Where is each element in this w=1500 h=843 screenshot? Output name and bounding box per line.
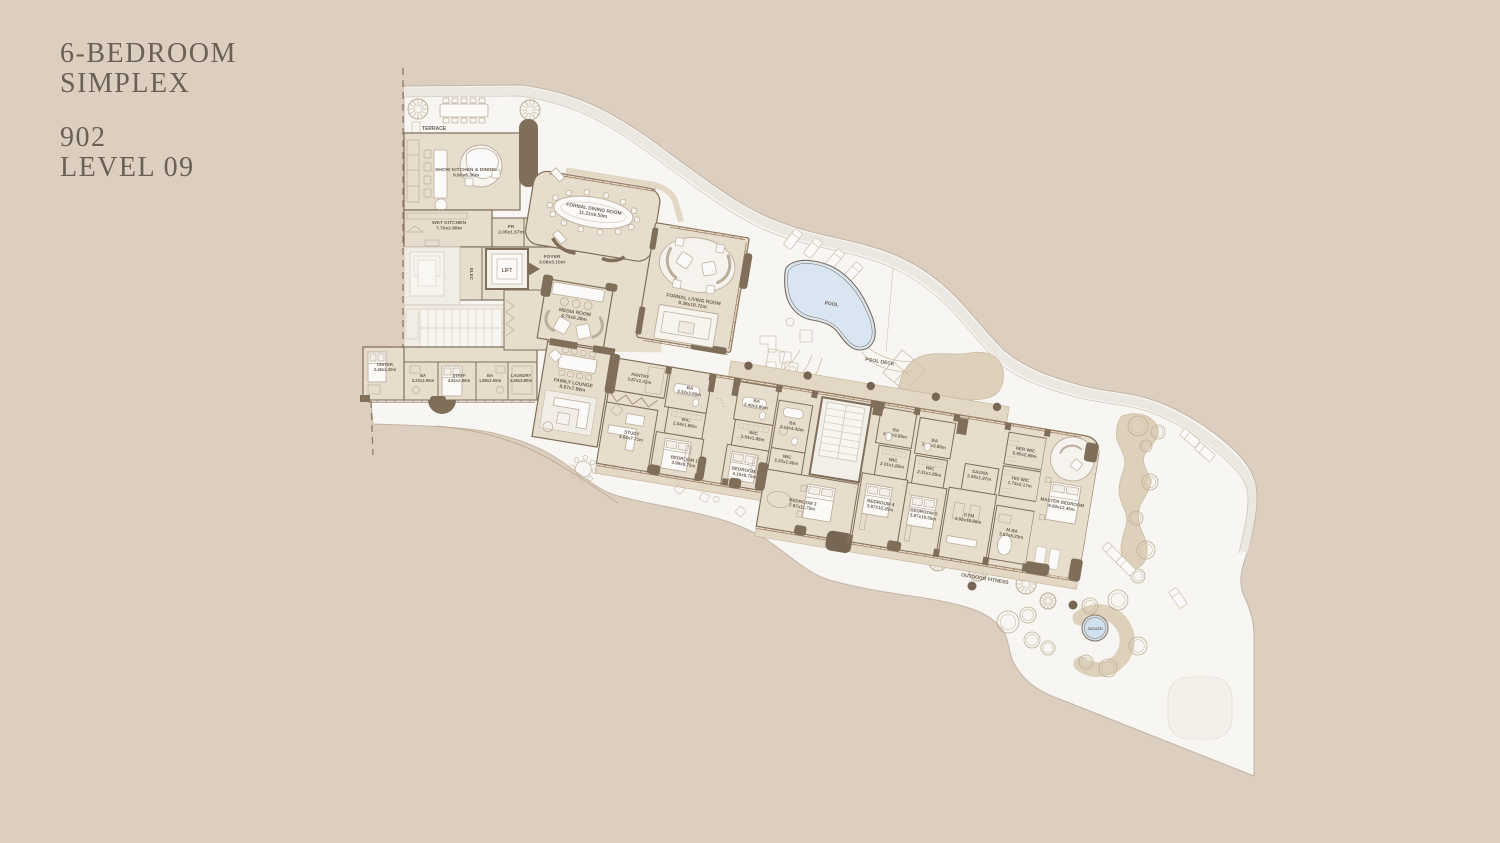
svg-text:2.45x2.90m: 2.45x2.90m: [510, 378, 533, 383]
svg-text:SHOW KITCHEN & DINING: SHOW KITCHEN & DINING: [435, 167, 497, 173]
svg-text:2.46x4.20m: 2.46x4.20m: [374, 367, 397, 372]
svg-text:LIFT: LIFT: [502, 268, 513, 274]
svg-text:SIMPLEX: SIMPLEX: [60, 68, 190, 99]
svg-text:PR: PR: [508, 224, 515, 230]
svg-text:WET KITCHEN: WET KITCHEN: [432, 220, 466, 226]
svg-text:2.20x2.95m: 2.20x2.95m: [412, 378, 435, 383]
svg-text:9.90x8.36m: 9.90x8.36m: [453, 173, 480, 179]
svg-text:FOYER: FOYER: [544, 254, 561, 260]
svg-text:7.70x2.88m: 7.70x2.88m: [436, 226, 463, 232]
svg-text:6-BEDROOM: 6-BEDROOM: [60, 38, 237, 69]
svg-text:3.81x2.96m: 3.81x2.96m: [448, 378, 471, 383]
svg-text:902: 902: [60, 122, 107, 153]
svg-text:TERRACE: TERRACE: [422, 126, 447, 132]
svg-text:LEVEL 09: LEVEL 09: [60, 152, 195, 183]
svg-text:ELEC: ELEC: [469, 268, 474, 281]
svg-text:3.08x3.10m: 3.08x3.10m: [539, 260, 566, 266]
svg-text:JACUZZI: JACUZZI: [1087, 627, 1102, 631]
svg-text:2.05x1.57m: 2.05x1.57m: [498, 230, 524, 236]
svg-text:1.88x2.95m: 1.88x2.95m: [479, 378, 502, 383]
